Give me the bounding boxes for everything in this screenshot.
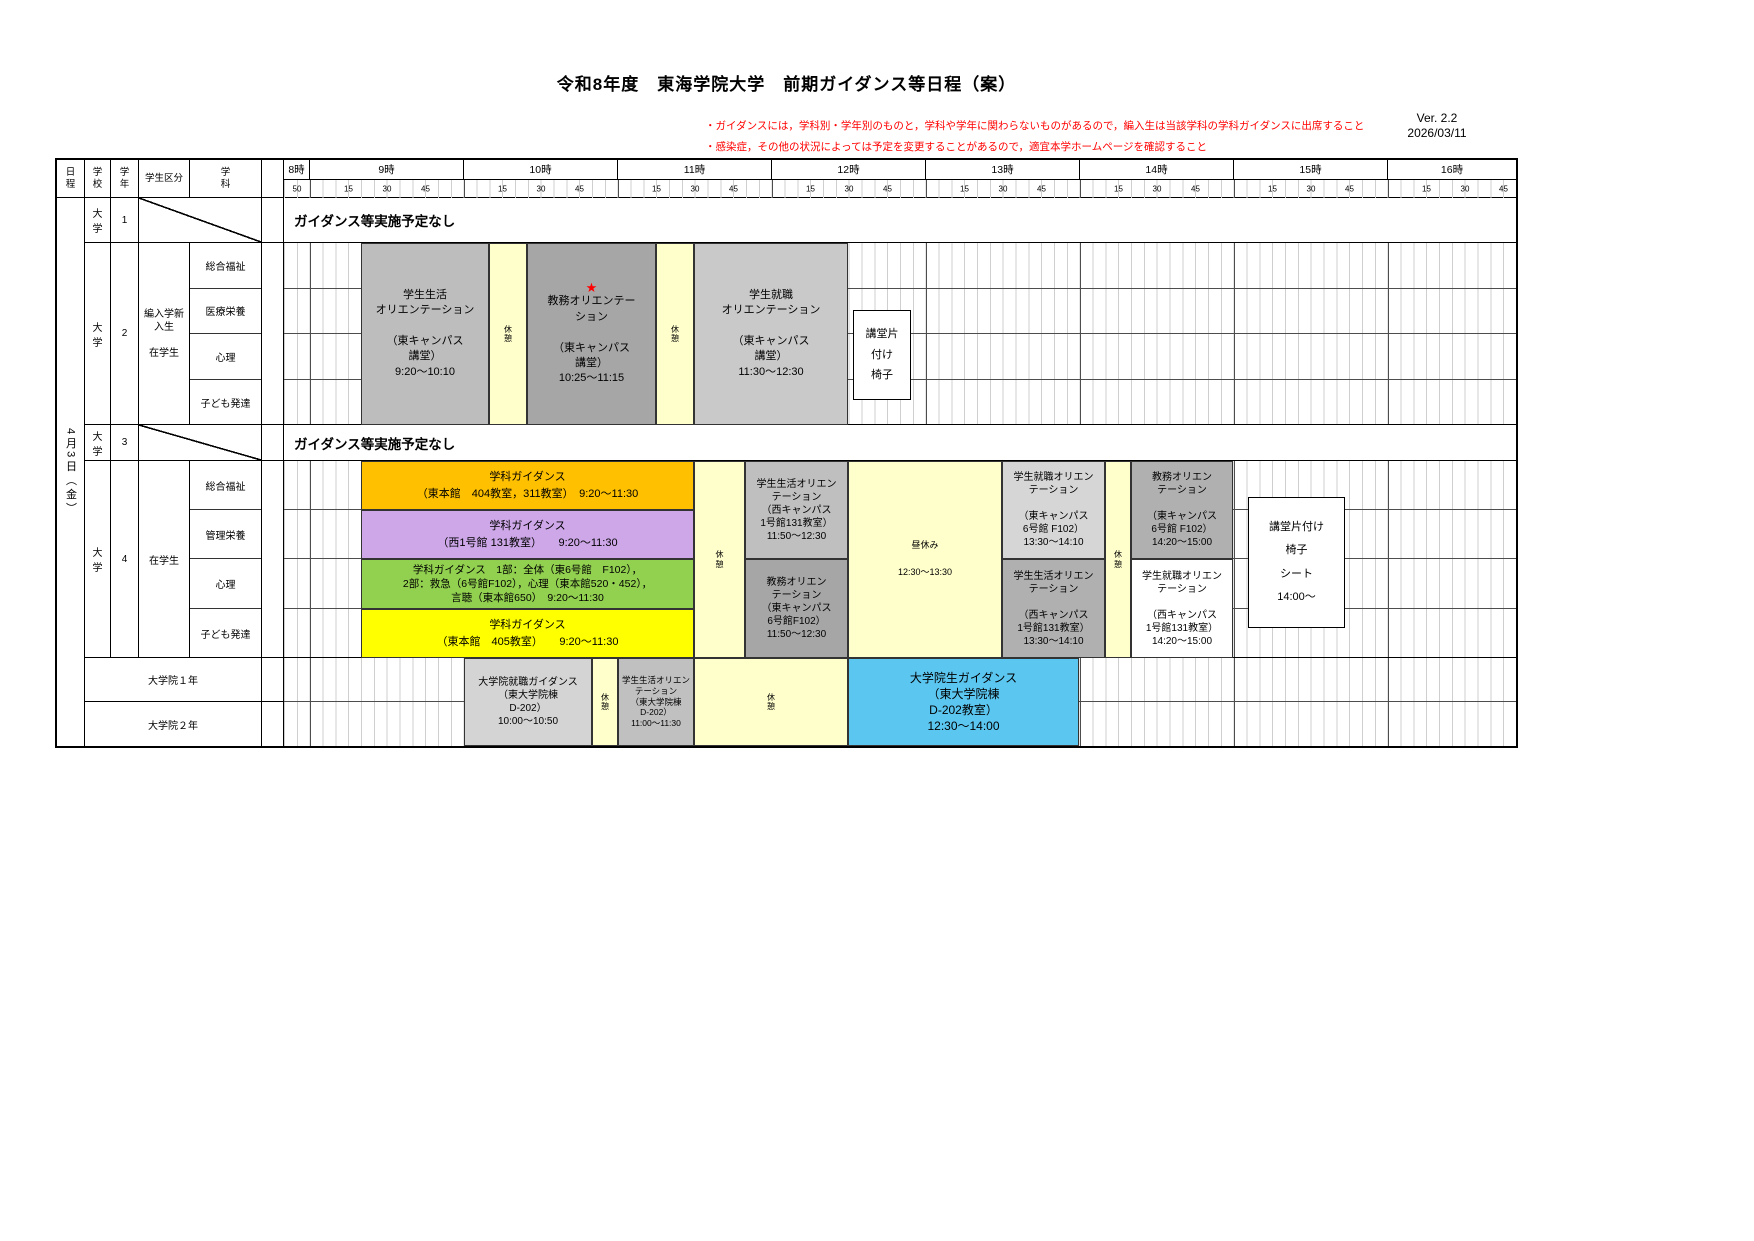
spacer-cell: [262, 461, 284, 657]
event-text: 学科ガイダンス （東本館 405教室） 9:20～11:30: [437, 617, 619, 650]
hour-11: 11時: [618, 160, 772, 179]
minute-label: 30: [383, 185, 392, 194]
no-guidance-text: ガイダンス等実施予定なし: [284, 210, 455, 230]
version-info: Ver. 2.2 2026/03/11: [1398, 111, 1476, 141]
timeline-grid-grade4: 学科ガイダンス （東本館 404教室，311教室） 9:20～11:30 学科ガ…: [284, 461, 1516, 657]
hour-9: 9時: [310, 160, 464, 179]
minute-label: 30: [691, 185, 700, 194]
event-grad-employment-guidance: 大学院就職ガイダンス （東大学院棟 D-202） 10:00～10:50: [464, 658, 592, 746]
event-break: 休 憩: [489, 243, 527, 425]
event-grad-student-life: 学生生活オリエン テーション （東大学院棟 D-202） 11:00～11:30: [618, 658, 694, 746]
minute-label: 15: [1114, 185, 1123, 194]
school-cell: 大 学: [85, 461, 111, 657]
department-column: 総合福祉 医療栄養 心理 子ども発達: [190, 243, 262, 424]
minute-label: 15: [1422, 185, 1431, 194]
category-cell: 在学生: [139, 461, 190, 657]
col-header-department: 学 科: [190, 160, 262, 197]
no-guidance-cell: ガイダンス等実施予定なし: [284, 198, 1516, 242]
version-number: Ver. 2.2: [1398, 111, 1476, 126]
minute-label: 45: [1191, 185, 1200, 194]
minute-label: 45: [1345, 185, 1354, 194]
hour-13: 13時: [926, 160, 1080, 179]
event-text: 学生就職 オリエンテーション （東キャンパス 講堂） 11:30～12:30: [722, 288, 821, 380]
col-header-date: 日 程: [57, 160, 85, 197]
event-lunch-break: 昼休み 12:30～13:30: [848, 461, 1002, 658]
minute-label: 30: [999, 185, 1008, 194]
spacer-cell: [262, 243, 284, 424]
minute-label-row: 50 15 30 45 15 30 45 15 30 45 15 30 45 1…: [284, 180, 1516, 198]
minute-label: 30: [1153, 185, 1162, 194]
row-univ-grade1: 大 学 1 ガイダンス等実施予定なし: [85, 198, 1516, 243]
event-text: 学科ガイダンス （東本館 404教室，311教室） 9:20～11:30: [417, 469, 639, 502]
event-gakka-guidance-sogo: 学科ガイダンス （東本館 404教室，311教室） 9:20～11:30: [361, 461, 694, 510]
department-column: 総合福祉 管理栄養 心理 子ども発達: [190, 461, 262, 657]
schedule-table: 日 程 学 校 学 年 学生区分 学 科 8時 9時 10時 11時 12時 1…: [55, 158, 1518, 748]
event-break: 休 憩: [592, 658, 618, 746]
event-employment-orientation: 学生就職 オリエンテーション （東キャンパス 講堂） 11:30～12:30: [694, 243, 848, 425]
event-text: 学生生活オリエン テーション （東大学院棟 D-202） 11:00～11:30: [622, 675, 690, 728]
event-text: 大学院生ガイダンス （東大学院棟 D-202教室） 12:30～14:00: [910, 670, 1017, 735]
minute-label: 15: [960, 185, 969, 194]
event-gakka-guidance-shinri: 学科ガイダンス 1部：全体（東6号館 F102）， 2部：救急（6号館F102）…: [361, 559, 694, 609]
grade-cell: 2: [111, 243, 139, 424]
grade-cell: 4: [111, 461, 139, 657]
minute-label: 45: [729, 185, 738, 194]
event-text: 学生生活オリエン テーション （西キャンパス 1号館131教室） 13:30～1…: [1014, 570, 1094, 648]
rows-graduate: 大学院１年 大学院２年 大学院就職ガイダンス （東大学院棟 D-202） 10:…: [85, 658, 1516, 746]
event-break: 休 憩: [694, 461, 745, 658]
no-guidance-cell: ガイダンス等実施予定なし: [284, 425, 1516, 460]
event-text: 学生生活オリエン テーション （西キャンパス 1号館131教室） 11:50～1…: [757, 478, 837, 543]
minute-label: 15: [344, 185, 353, 194]
dept-shinri: 心理: [190, 334, 261, 380]
row-univ-grade2: 大 学 2 編入学新 入生 在学生 総合福祉 医療栄養 心理 子ども発達 学生生…: [85, 243, 1516, 425]
page-title: 令和8年度 東海学院大学 前期ガイダンス等日程（案）: [57, 70, 1516, 95]
break-label: 休 憩: [716, 550, 724, 568]
col-header-spacer: [262, 160, 284, 197]
minute-label: 30: [1461, 185, 1470, 194]
event-student-life-west2: 学生生活オリエン テーション （西キャンパス 1号館131教室） 13:30～1…: [1002, 559, 1105, 658]
minute-label: 30: [1307, 185, 1316, 194]
minute-label: 15: [652, 185, 661, 194]
grad-year2-label: 大学院２年: [85, 702, 262, 746]
school-cell: 大 学: [85, 425, 111, 460]
col-header-category: 学生区分: [139, 160, 190, 197]
minute-label: 30: [845, 185, 854, 194]
hour-10: 10時: [464, 160, 618, 179]
dept-shinri: 心理: [190, 559, 261, 609]
minute-label: 45: [1037, 185, 1046, 194]
event-kyomu-east: 教務オリエン テーション （東キャンパス 6号館F102） 11:50～12:3…: [745, 559, 848, 658]
break-label: 休 憩: [504, 325, 512, 343]
spacer-cell: [262, 702, 284, 746]
hour-label-row: 8時 9時 10時 11時 12時 13時 14時 15時 16時: [284, 160, 1516, 180]
minute-label: 15: [498, 185, 507, 194]
event-text: 学生就職オリエン テーション （西キャンパス 1号館131教室） 14:20～1…: [1142, 570, 1222, 648]
minute-label: 15: [806, 185, 815, 194]
event-text: 学科ガイダンス （西1号館 131教室） 9:20～11:30: [437, 518, 617, 551]
break-label: 休 憩: [1114, 550, 1122, 568]
auditorium-cleanup-sheet-box: 講堂片付け 椅子 シート 14:00～: [1248, 497, 1345, 628]
event-student-life-orientation: 学生生活 オリエンテーション （東キャンパス 講堂） 9:20～10:10: [361, 243, 489, 425]
dept-iryoeiyo: 医療栄養: [190, 289, 261, 335]
auditorium-cleanup-box: 講堂片 付け 椅子: [853, 310, 911, 400]
event-break: 休 憩: [656, 243, 694, 425]
break-label: 休 憩: [671, 325, 679, 343]
timeline-grid-grade2: 学生生活 オリエンテーション （東キャンパス 講堂） 9:20～10:10 休 …: [284, 243, 1516, 424]
event-kyomu-east2: 教務オリエン テーション （東キャンパス 6号館 F102） 14:20～15:…: [1131, 461, 1233, 559]
dept-kodomohattatsu: 子ども発達: [190, 380, 261, 426]
version-date: 2026/03/11: [1398, 126, 1476, 141]
note-line-1: ・ガイダンスには，学科別・学年別のものと，学科や学年に関わらないものがあるので，…: [705, 118, 1364, 133]
schedule-page: 令和8年度 東海学院大学 前期ガイダンス等日程（案） Ver. 2.2 2026…: [0, 0, 1754, 1241]
event-kyomu-orientation: ★ 教務オリエンテー ション （東キャンパス 講堂） 10:25～11:15: [527, 243, 656, 425]
school-cell: 大 学: [85, 198, 111, 242]
event-break: 休 憩: [694, 658, 848, 746]
event-employment-east: 学生就職オリエン テーション （東キャンパス 6号館 F102） 13:30～1…: [1002, 461, 1105, 559]
break-label: 休 憩: [767, 693, 775, 711]
event-gakka-guidance-kanri: 学科ガイダンス （西1号館 131教室） 9:20～11:30: [361, 510, 694, 559]
table-header: 日 程 学 校 学 年 学生区分 学 科 8時 9時 10時 11時 12時 1…: [57, 160, 1516, 198]
event-grad-guidance: 大学院生ガイダンス （東大学院棟 D-202教室） 12:30～14:00: [848, 658, 1079, 746]
note-line-2: ・感染症，その他の状況によっては予定を変更することがあるので，適宜本学ホームペー…: [705, 139, 1207, 154]
event-employment-west: 学生就職オリエン テーション （西キャンパス 1号館131教室） 14:20～1…: [1131, 559, 1233, 658]
event-text: 学科ガイダンス 1部：全体（東6号館 F102）， 2部：救急（6号館F102）…: [403, 563, 652, 606]
event-text: 学生生活 オリエンテーション （東キャンパス 講堂） 9:20～10:10: [376, 288, 475, 380]
row-univ-grade4: 大 学 4 在学生 総合福祉 管理栄養 心理 子ども発達 学科ガイダンス （東本…: [85, 461, 1516, 658]
minute-label: 45: [883, 185, 892, 194]
event-text: 昼休み 12:30～13:30: [898, 539, 952, 580]
school-cell: 大 学: [85, 243, 111, 424]
spacer-cell: [262, 658, 284, 702]
box-text: 講堂片 付け 椅子: [866, 324, 899, 387]
category-dept-empty-cell: [139, 198, 262, 242]
grad-year1-label: 大学院１年: [85, 658, 262, 702]
event-text: 教務オリエンテー ション （東キャンパス 講堂） 10:25～11:15: [548, 294, 636, 386]
grade-cell: 3: [111, 425, 139, 460]
category-dept-empty-cell: [139, 425, 262, 460]
hour-16: 16時: [1388, 160, 1516, 179]
box-text: 講堂片付け 椅子 シート 14:00～: [1269, 516, 1324, 608]
event-text: 大学院就職ガイダンス （東大学院棟 D-202） 10:00～10:50: [478, 676, 577, 728]
date-cell: 4月3日（金）: [57, 198, 85, 746]
row-univ-grade3: 大 学 3 ガイダンス等実施予定なし: [85, 425, 1516, 461]
event-text: 教務オリエン テーション （東キャンパス 6号館F102） 11:50～12:3…: [762, 576, 832, 641]
minute-label: 45: [1499, 185, 1508, 194]
no-guidance-text: ガイダンス等実施予定なし: [284, 433, 455, 453]
dept-kanrieiyo: 管理栄養: [190, 510, 261, 559]
hour-14: 14時: [1080, 160, 1234, 179]
minute-label: 45: [421, 185, 430, 194]
star-icon: ★: [586, 281, 598, 294]
col-header-school: 学 校: [85, 160, 111, 197]
dept-sogofukushi: 総合福祉: [190, 243, 261, 289]
dept-kodomohattatsu: 子ども発達: [190, 609, 261, 658]
minute-label: 45: [575, 185, 584, 194]
event-text: 教務オリエン テーション （東キャンパス 6号館 F102） 14:20～15:…: [1147, 471, 1217, 549]
hour-15: 15時: [1234, 160, 1388, 179]
hour-12: 12時: [772, 160, 926, 179]
event-break: 休 憩: [1105, 461, 1131, 658]
event-text: 学生就職オリエン テーション （東キャンパス 6号館 F102） 13:30～1…: [1014, 471, 1094, 549]
event-student-life-west: 学生生活オリエン テーション （西キャンパス 1号館131教室） 11:50～1…: [745, 461, 848, 559]
spacer-cell: [262, 425, 284, 460]
minute-label: 15: [1268, 185, 1277, 194]
timeline-grid-graduate: 大学院就職ガイダンス （東大学院棟 D-202） 10:00～10:50 休 憩…: [284, 658, 1516, 746]
minute-50: 50: [293, 185, 302, 194]
hour-8: 8時: [284, 160, 310, 179]
dept-sogofukushi: 総合福祉: [190, 461, 261, 510]
minute-label: 30: [537, 185, 546, 194]
spacer-cell: [262, 198, 284, 242]
event-gakka-guidance-kodomo: 学科ガイダンス （東本館 405教室） 9:20～11:30: [361, 609, 694, 658]
col-header-grade: 学 年: [111, 160, 139, 197]
grade-cell: 1: [111, 198, 139, 242]
date-label: 4月3日（金）: [63, 428, 79, 516]
category-cell: 編入学新 入生 在学生: [139, 243, 190, 424]
break-label: 休 憩: [601, 693, 609, 711]
